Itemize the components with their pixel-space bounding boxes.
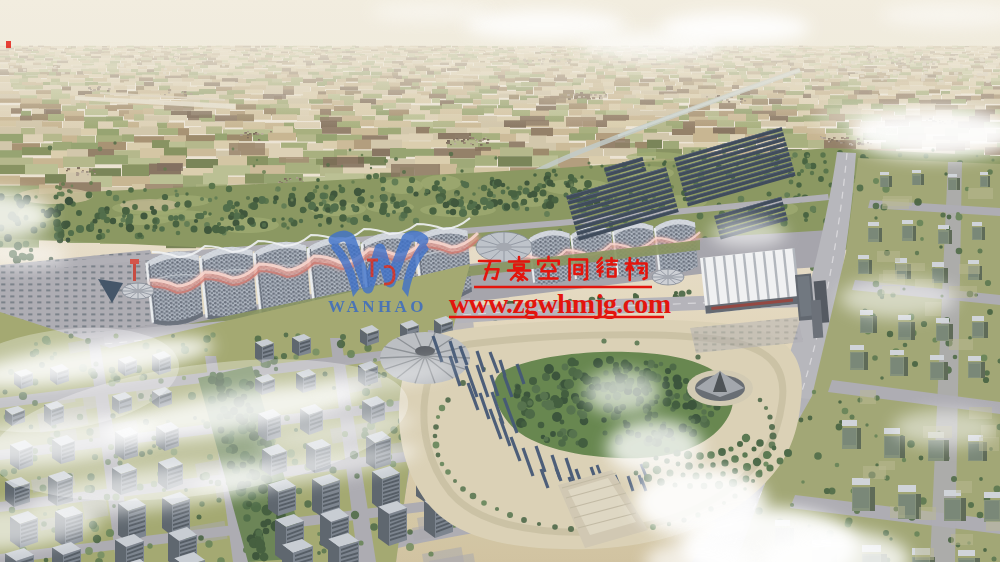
svg-text:www.zgwhmjg.com: www.zgwhmjg.com xyxy=(449,288,671,319)
